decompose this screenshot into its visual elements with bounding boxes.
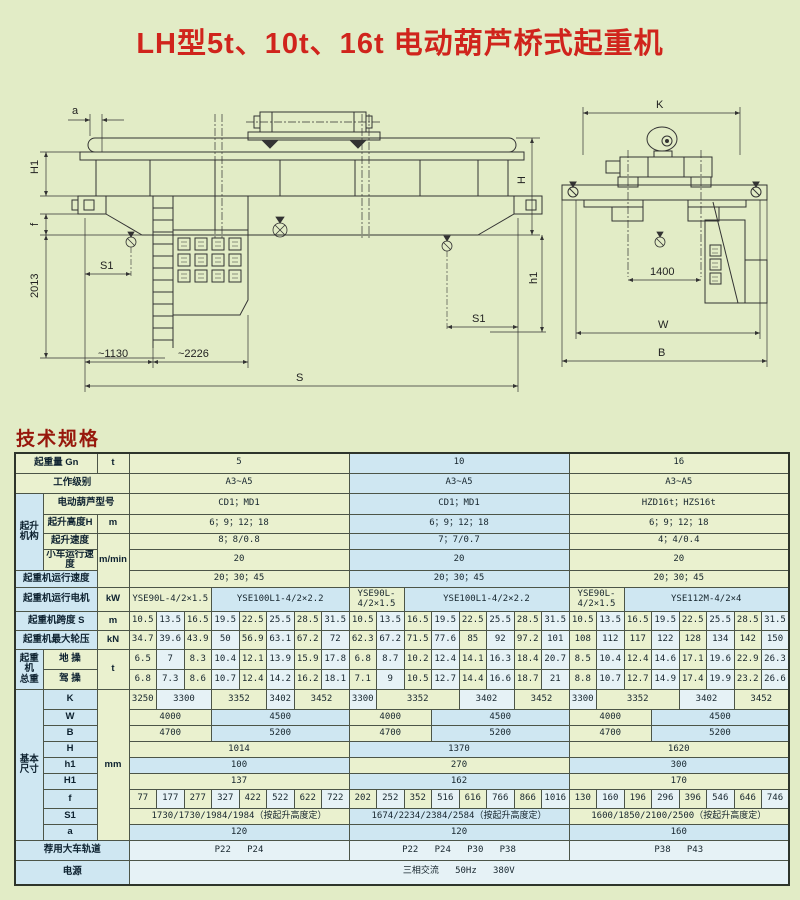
weight-cab-cell: 17.4: [679, 670, 707, 690]
crane-motor-cell: YSE90L-4/2×1.5: [349, 588, 404, 612]
weight-group-label: 起重 机 总重: [15, 650, 43, 690]
dim-K-cell: 3402: [459, 690, 514, 710]
span-cell: 10.5: [349, 612, 377, 631]
dim-K-cell: 3300: [349, 690, 377, 710]
dim-S-label: S: [296, 372, 303, 384]
span-cell: 22.5: [239, 612, 267, 631]
wheel-load-cell: 134: [707, 631, 735, 650]
weight-ground-cell: 22.9: [734, 650, 762, 670]
weight-cab-cell: 10.7: [212, 670, 240, 690]
dim-H-cell: 1370: [349, 742, 569, 758]
crane-motor-cell: YSE112M-4/2×4: [624, 588, 789, 612]
wheel-load-cell: 142: [734, 631, 762, 650]
dim-K-cell: 3452: [294, 690, 349, 710]
dim-f-cell: 546: [707, 790, 735, 809]
dim-h1-label: h1: [528, 272, 540, 284]
row-wheel-load: 起重机最大轮压 kN 34.739.643.95056.963.167.2726…: [15, 631, 789, 650]
power-label: 电源: [15, 861, 129, 885]
dim-K-cell: 3352: [212, 690, 267, 710]
wheel-load-cell: 101: [542, 631, 570, 650]
dim-h1-cell: 100: [129, 758, 349, 774]
wheel-load-cell: 62.3: [349, 631, 377, 650]
rail-cell: P22 P24: [129, 841, 349, 861]
span-unit: m: [97, 612, 129, 631]
weight-ground-cell: 17.8: [322, 650, 350, 670]
weight-ground-cell: 12.4: [624, 650, 652, 670]
dim-S1-cell: 1600/1850/2100/2500（按起升高度定）: [569, 809, 789, 825]
crane-motor-cell: YSE90L-4/2×1.5: [569, 588, 624, 612]
dim-f-cell: 646: [734, 790, 762, 809]
dim-B-cell: 4700: [569, 726, 652, 742]
dim-B-label: B: [658, 347, 665, 359]
lift-speed-cell: 8；8/0.8: [129, 533, 349, 549]
duty-class-label: 工作级别: [15, 473, 129, 493]
crane-speed-cell: 20；30；45: [129, 571, 349, 588]
bridge-cross-beam: [562, 182, 767, 221]
span-cell: 31.5: [762, 612, 790, 631]
row-dim-H1: H1 137162170: [15, 774, 789, 790]
dim-f-cell: 616: [459, 790, 487, 809]
trolley-speed-label: 小车运行速度: [43, 549, 97, 571]
row-dim-K: 基本 尺寸 K mm 32503300335234023452330033523…: [15, 690, 789, 710]
dim-f-row-label: f: [43, 790, 97, 809]
weight-ground-cell: 10.4: [597, 650, 625, 670]
dim-f-cell: 77: [129, 790, 157, 809]
weight-ground-cell: 10.4: [212, 650, 240, 670]
dim-H1-cell: 162: [349, 774, 569, 790]
dim-K-cell: 3452: [514, 690, 569, 710]
weight-ground-cell: 18.4: [514, 650, 542, 670]
span-cell: 13.5: [377, 612, 405, 631]
row-power: 电源 三相交流 50Hz 380V: [15, 861, 789, 885]
wheel-load-cell: 56.9: [239, 631, 267, 650]
dim-f-cell: 352: [404, 790, 432, 809]
wheel-load-cell: 112: [597, 631, 625, 650]
duty-class-cell: A3~A5: [129, 473, 349, 493]
wheel-load-unit: kN: [97, 631, 129, 650]
weight-ground-cell: 10.2: [404, 650, 432, 670]
span-cell: 19.5: [212, 612, 240, 631]
dim-h1-cell: 300: [569, 758, 789, 774]
row-crane-motor: 起重机运行电机 kW YSE90L-4/2×1.5YSE100L1-4/2×2.…: [15, 588, 789, 612]
wheel-load-cell: 43.9: [184, 631, 212, 650]
dim-H-label: H: [516, 176, 528, 184]
section-heading: 技术规格: [16, 424, 100, 451]
hoist-trolley: [246, 112, 380, 148]
weight-cab-cell: 23.2: [734, 670, 762, 690]
weight-cab-label: 驾 操: [43, 670, 97, 690]
weight-ground-cell: 8.3: [184, 650, 212, 670]
row-duty-class: 工作级别 A3~A5A3~A5A3~A5: [15, 473, 789, 493]
weight-ground-cell: 20.7: [542, 650, 570, 670]
duty-class-cell: A3~A5: [569, 473, 789, 493]
dim-1400-label: 1400: [650, 266, 674, 278]
weight-cab-cell: 12.7: [432, 670, 460, 690]
crane-motor-label: 起重机运行电机: [15, 588, 97, 612]
weight-ground-cell: 26.3: [762, 650, 790, 670]
dim-K-row-label: K: [43, 690, 97, 710]
weight-cab-cell: 18.1: [322, 670, 350, 690]
dim-h1-row-label: h1: [43, 758, 97, 774]
dim-f-label: f: [29, 222, 41, 226]
weight-ground-cell: 8.7: [377, 650, 405, 670]
dim-S1-cell: 1730/1730/1984/1984（按起升高度定）: [129, 809, 349, 825]
weight-ground-cell: 8.5: [569, 650, 597, 670]
center-target-mark: [655, 232, 665, 247]
lift-speed-label: 起升速度: [43, 533, 97, 549]
dim-W-cell: 4500: [652, 710, 790, 726]
dim-K-cell: 3300: [569, 690, 597, 710]
row-dim-W: W 400045004000450040004500: [15, 710, 789, 726]
lift-speed-cell: 4；4/0.4: [569, 533, 789, 549]
span-cell: 22.5: [679, 612, 707, 631]
wheel-centerlines: [628, 150, 701, 277]
row-lift-speed: 起升速度 m/min 8；8/0.87；7/0.74；4/0.4: [15, 533, 789, 549]
dim-f-cell: 327: [212, 790, 240, 809]
trolley-speed-cell: 20: [569, 549, 789, 571]
cab-and-ladder: [153, 196, 248, 348]
hoist-model-cell: CD1；MD1: [129, 493, 349, 514]
row-trolley-speed: 小车运行速度 202020: [15, 549, 789, 571]
dim-f-cell: 202: [349, 790, 377, 809]
crane-motor-cell: YSE100L1-4/2×2.2: [212, 588, 350, 612]
crane-side-view-drawing: a H1 f 2013 S1 S1 ~1130 ~2226 S H h1: [10, 100, 546, 400]
row-capacity: 起重量 Gn t 51016: [15, 453, 789, 473]
dim-f-cell: 296: [652, 790, 680, 809]
dims-unit: mm: [97, 690, 129, 841]
dim-K-cell: 3352: [377, 690, 460, 710]
weight-cab-cell: 14.2: [267, 670, 295, 690]
row-dim-B: B 470052004700520047005200: [15, 726, 789, 742]
weight-cab-cell: 16.6: [487, 670, 515, 690]
power-cell: 三相交流 50Hz 380V: [129, 861, 789, 885]
dim-H-row-label: H: [43, 742, 97, 758]
dim-a-label: a: [72, 105, 79, 117]
catalog-page: LH型5t、10t、16t 电动葫芦桥式起重机: [0, 0, 800, 900]
dim-B-cell: 5200: [652, 726, 790, 742]
dim-S1-cell: 1674/2234/2384/2584（按起升高度定）: [349, 809, 569, 825]
weight-cab-cell: 10.7: [597, 670, 625, 690]
weight-ground-cell: 14.1: [459, 650, 487, 670]
wheel-load-cell: 117: [624, 631, 652, 650]
span-cell: 31.5: [542, 612, 570, 631]
row-span: 起重机跨度 S m 10.513.516.519.522.525.528.531…: [15, 612, 789, 631]
dim-H1-cell: 170: [569, 774, 789, 790]
dim-a-cell: 120: [349, 825, 569, 841]
row-weight-cab: 驾 操 6.87.38.610.712.414.216.218.17.1910.…: [15, 670, 789, 690]
weight-ground-cell: 15.9: [294, 650, 322, 670]
capacity-unit: t: [97, 453, 129, 473]
span-cell: 31.5: [322, 612, 350, 631]
dims-group-label: 基本 尺寸: [15, 690, 43, 841]
weight-cab-cell: 12.4: [239, 670, 267, 690]
weight-ground-cell: 7: [157, 650, 185, 670]
span-cell: 16.5: [404, 612, 432, 631]
trolley-speed-cell: 20: [129, 549, 349, 571]
rail-cell: P38 P43: [569, 841, 789, 861]
trolley-speed-cell: 20: [349, 549, 569, 571]
wheel-load-cell: 67.2: [294, 631, 322, 650]
lift-height-cell: 6；9；12；18: [349, 514, 569, 533]
dim-f-cell: 722: [322, 790, 350, 809]
crane-speed-cell: 20；30；45: [569, 571, 789, 588]
span-cell: 19.5: [652, 612, 680, 631]
dim-W-row-label: W: [43, 710, 97, 726]
end-trucks: [72, 196, 542, 235]
span-cell: 25.5: [487, 612, 515, 631]
dim-K-cell: 3300: [157, 690, 212, 710]
trolley-centerlines: [215, 114, 369, 238]
hoist-model-cell: HZD16t；HZS16t: [569, 493, 789, 514]
weight-cab-cell: 7.1: [349, 670, 377, 690]
wheel-load-cell: 85: [459, 631, 487, 650]
weight-cab-cell: 7.3: [157, 670, 185, 690]
weight-cab-cell: 21: [542, 670, 570, 690]
lift-height-label: 起升高度H: [43, 514, 97, 533]
wheel-load-cell: 72: [322, 631, 350, 650]
weight-cab-cell: 9: [377, 670, 405, 690]
bridge-girder: [80, 138, 524, 196]
weight-ground-cell: 19.6: [707, 650, 735, 670]
dim-a-cell: 120: [129, 825, 349, 841]
capacity-cell: 10: [349, 453, 569, 473]
dim-f-cell: 277: [184, 790, 212, 809]
lift-speed-cell: 7；7/0.7: [349, 533, 569, 549]
lift-height-cell: 6；9；12；18: [129, 514, 349, 533]
dim-H1-cell: 137: [129, 774, 349, 790]
capacity-cell: 5: [129, 453, 349, 473]
dim-H1-label: H1: [29, 160, 41, 174]
dim-K-cell: 3250: [129, 690, 157, 710]
hoist-model-cell: CD1；MD1: [349, 493, 569, 514]
weight-ground-cell: 6.8: [349, 650, 377, 670]
span-cell: 25.5: [267, 612, 295, 631]
dim-K-label: K: [656, 99, 664, 111]
crane-motor-unit: kW: [97, 588, 129, 612]
weight-ground-cell: 6.5: [129, 650, 157, 670]
dim-S1-left-label: S1: [100, 260, 113, 272]
wheel-load-cell: 92: [487, 631, 515, 650]
row-lift-height: 起升高度H m 6；9；12；186；9；12；186；9；12；18: [15, 514, 789, 533]
dim-H1-row-label: H1: [43, 774, 97, 790]
span-cell: 28.5: [514, 612, 542, 631]
row-rail: 荐用大车轨道 P22 P24P22 P24 P30 P38P38 P43: [15, 841, 789, 861]
row-dim-a: a 120120160: [15, 825, 789, 841]
speed-unit: m/min: [97, 533, 129, 588]
wheel-load-cell: 63.1: [267, 631, 295, 650]
weight-cab-cell: 19.9: [707, 670, 735, 690]
wheel-load-cell: 122: [652, 631, 680, 650]
crane-speed-cell: 20；30；45: [349, 571, 569, 588]
row-crane-speed: 起重机运行速度 20；30；4520；30；4520；30；45: [15, 571, 789, 588]
dim-B-cell: 4700: [349, 726, 432, 742]
wheel-load-cell: 77.6: [432, 631, 460, 650]
weight-cab-cell: 10.5: [404, 670, 432, 690]
duty-class-cell: A3~A5: [349, 473, 569, 493]
dim-K-cell: 3402: [679, 690, 734, 710]
lift-height-unit: m: [97, 514, 129, 533]
dim-f-cell: 396: [679, 790, 707, 809]
crane-end-view-drawing: K 1400 W B: [548, 95, 798, 385]
dim-f-cell: 746: [762, 790, 790, 809]
dim-W-cell: 4500: [432, 710, 570, 726]
wheel-load-cell: 97.2: [514, 631, 542, 650]
dim-W-label: W: [658, 319, 669, 331]
dim-W-cell: 4000: [569, 710, 652, 726]
wheel-load-cell: 39.6: [157, 631, 185, 650]
dim-f-cell: 130: [569, 790, 597, 809]
weight-cab-cell: 14.9: [652, 670, 680, 690]
dim-W-cell: 4500: [212, 710, 350, 726]
cab-end-view: [705, 202, 767, 303]
dim-f-cell: 866: [514, 790, 542, 809]
crane-speed-label: 起重机运行速度: [15, 571, 97, 588]
wheel-load-cell: 71.5: [404, 631, 432, 650]
dim-f-cell: 196: [624, 790, 652, 809]
hoist-end-view: [606, 127, 712, 187]
dim-K-cell: 3452: [734, 690, 789, 710]
dim-h1-cell: 270: [349, 758, 569, 774]
span-cell: 19.5: [432, 612, 460, 631]
dim-2226-label: ~2226: [178, 348, 209, 360]
dim-S1-right-label: S1: [472, 313, 485, 325]
dim-f-cell: 422: [239, 790, 267, 809]
rail-cell: P22 P24 P30 P38: [349, 841, 569, 861]
dim-f-cell: 177: [157, 790, 185, 809]
crane-motor-cell: YSE90L-4/2×1.5: [129, 588, 212, 612]
span-cell: 10.5: [129, 612, 157, 631]
page-title: LH型5t、10t、16t 电动葫芦桥式起重机: [0, 20, 800, 62]
weight-cab-cell: 6.8: [129, 670, 157, 690]
weight-ground-cell: 12.4: [432, 650, 460, 670]
span-cell: 16.5: [624, 612, 652, 631]
wheel-load-cell: 128: [679, 631, 707, 650]
span-cell: 10.5: [569, 612, 597, 631]
wheel-load-cell: 150: [762, 631, 790, 650]
spec-table: 起重量 Gn t 51016 工作级别 A3~A5A3~A5A3~A5 起升 机…: [14, 452, 790, 886]
row-dim-H: H 101413701620: [15, 742, 789, 758]
span-cell: 13.5: [597, 612, 625, 631]
hoist-model-label: 电动葫芦型号: [43, 493, 129, 514]
span-cell: 22.5: [459, 612, 487, 631]
span-cell: 25.5: [707, 612, 735, 631]
crane-motor-cell: YSE100L1-4/2×2.2: [404, 588, 569, 612]
row-dim-f: f 77177277327422522622722202252352516616…: [15, 790, 789, 809]
weight-ground-cell: 12.1: [239, 650, 267, 670]
wheel-load-label: 起重机最大轮压: [15, 631, 97, 650]
span-cell: 16.5: [184, 612, 212, 631]
span-cell: 13.5: [157, 612, 185, 631]
row-hoist-model: 起升 机构 电动葫芦型号 CD1；MD1CD1；MD1HZD16t；HZS16t: [15, 493, 789, 514]
span-cell: 28.5: [294, 612, 322, 631]
span-label: 起重机跨度 S: [15, 612, 97, 631]
dim-f-cell: 766: [487, 790, 515, 809]
rail-label: 荐用大车轨道: [15, 841, 129, 861]
dim-f-cell: 516: [432, 790, 460, 809]
row-dim-h1: h1 100270300: [15, 758, 789, 774]
wheel-load-cell: 34.7: [129, 631, 157, 650]
dim-H-cell: 1014: [129, 742, 349, 758]
weight-ground-cell: 14.6: [652, 650, 680, 670]
weight-ground-cell: 17.1: [679, 650, 707, 670]
weight-cab-cell: 14.4: [459, 670, 487, 690]
weight-ground-label: 地 操: [43, 650, 97, 670]
dim-f-cell: 622: [294, 790, 322, 809]
weight-cab-cell: 12.7: [624, 670, 652, 690]
hoist-group-label: 起升 机构: [15, 493, 43, 571]
dim-B-cell: 5200: [432, 726, 570, 742]
dim-K-cell: 3402: [267, 690, 295, 710]
dim-B-cell: 4700: [129, 726, 212, 742]
weight-cab-cell: 26.6: [762, 670, 790, 690]
dim-2013-label: 2013: [29, 274, 41, 298]
wheel-load-cell: 108: [569, 631, 597, 650]
weight-cab-cell: 18.7: [514, 670, 542, 690]
dim-1130-label: ~1130: [98, 348, 128, 360]
weight-unit: t: [97, 650, 129, 690]
dim-S1-row-label: S1: [43, 809, 97, 825]
wheel-load-cell: 50: [212, 631, 240, 650]
dim-f-cell: 160: [597, 790, 625, 809]
weight-cab-cell: 8.8: [569, 670, 597, 690]
weight-ground-cell: 16.3: [487, 650, 515, 670]
dim-W-cell: 4000: [349, 710, 432, 726]
lift-height-cell: 6；9；12；18: [569, 514, 789, 533]
capacity-label: 起重量 Gn: [15, 453, 97, 473]
dim-f-cell: 252: [377, 790, 405, 809]
dim-f-cell: 1016: [542, 790, 570, 809]
centerline-marks: [126, 217, 452, 329]
dim-B-cell: 5200: [212, 726, 350, 742]
row-weight-ground: 起重 机 总重 地 操 t 6.578.310.412.113.915.917.…: [15, 650, 789, 670]
dim-H-cell: 1620: [569, 742, 789, 758]
dim-W-cell: 4000: [129, 710, 212, 726]
dim-a-row-label: a: [43, 825, 97, 841]
weight-cab-cell: 16.2: [294, 670, 322, 690]
capacity-cell: 16: [569, 453, 789, 473]
row-dim-S1: S1 1730/1730/1984/1984（按起升高度定）1674/2234/…: [15, 809, 789, 825]
wheel-load-cell: 67.2: [377, 631, 405, 650]
dim-B-row-label: B: [43, 726, 97, 742]
weight-cab-cell: 8.6: [184, 670, 212, 690]
dim-f-cell: 522: [267, 790, 295, 809]
dim-K-cell: 3352: [597, 690, 680, 710]
dim-a-cell: 160: [569, 825, 789, 841]
weight-ground-cell: 13.9: [267, 650, 295, 670]
span-cell: 28.5: [734, 612, 762, 631]
